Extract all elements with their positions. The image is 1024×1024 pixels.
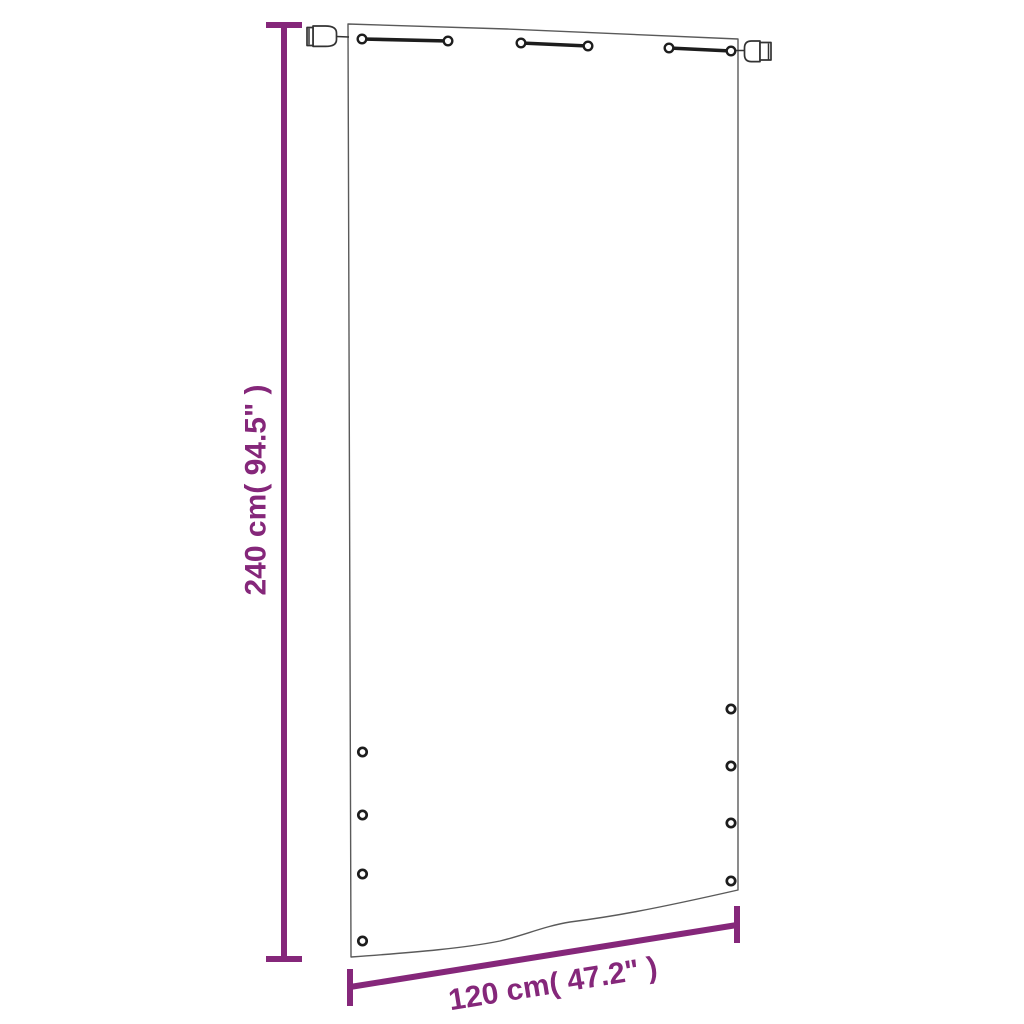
rod-end-cap-right <box>736 41 771 62</box>
product-dimension-diagram: 240 cm( 94.5" ) 120 cm( 47.2" ) <box>0 0 1024 1024</box>
grommet <box>727 705 735 713</box>
tab-ring <box>665 44 674 53</box>
grommet <box>358 811 366 819</box>
end-cap-body <box>313 26 337 46</box>
grommet <box>358 937 366 945</box>
tab-ring <box>444 37 453 46</box>
tab-ring <box>358 35 367 44</box>
end-cap-plate <box>307 28 313 46</box>
grommet <box>358 748 366 756</box>
tab-ring <box>517 39 526 48</box>
grommet <box>358 870 366 878</box>
rod-end-cap-left <box>307 26 349 46</box>
width-dimension-label: 120 cm( 47.2" ) <box>446 951 660 1017</box>
grommet <box>727 762 735 770</box>
curtain-panel-outline <box>348 24 738 957</box>
end-cap-plate <box>760 43 771 61</box>
grommet <box>727 819 735 827</box>
height-dimension-label: 240 cm( 94.5" ) <box>240 384 273 595</box>
tab-ring <box>727 47 736 56</box>
curtain-panel <box>348 24 738 957</box>
rod-connector <box>337 37 350 38</box>
grommet <box>727 877 735 885</box>
height-dimension: 240 cm( 94.5" ) <box>240 25 303 959</box>
end-cap-body <box>745 41 761 62</box>
tab-ring <box>584 42 593 51</box>
tab-strap <box>362 39 448 41</box>
